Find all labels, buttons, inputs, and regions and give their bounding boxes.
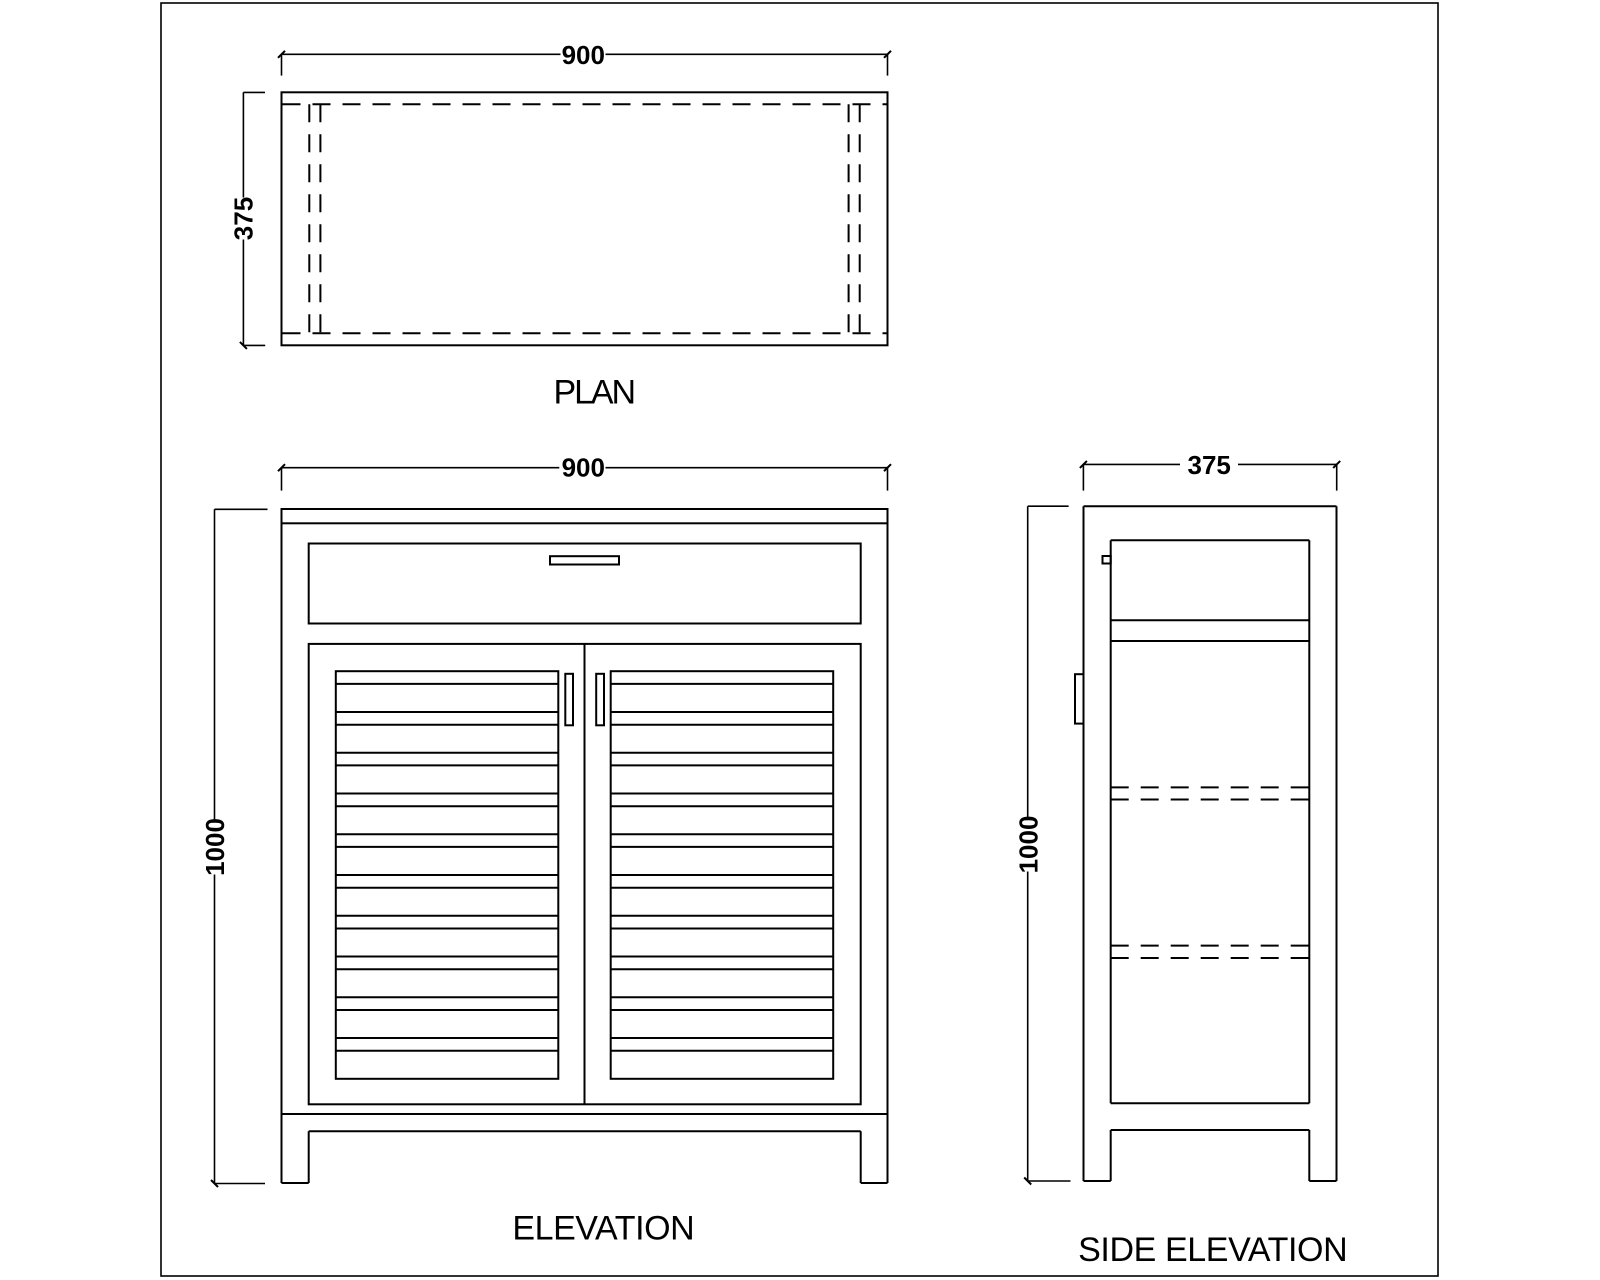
svg-text:PLAN: PLAN — [554, 373, 637, 411]
svg-text:ELEVATION: ELEVATION — [512, 1210, 694, 1248]
svg-text:SIDE ELEVATION: SIDE ELEVATION — [1078, 1231, 1348, 1269]
svg-text:900: 900 — [562, 453, 605, 483]
svg-text:1000: 1000 — [200, 818, 230, 876]
svg-text:375: 375 — [1188, 450, 1231, 480]
svg-text:1000: 1000 — [1013, 816, 1043, 874]
svg-text:900: 900 — [562, 40, 605, 70]
svg-text:375: 375 — [228, 197, 258, 240]
